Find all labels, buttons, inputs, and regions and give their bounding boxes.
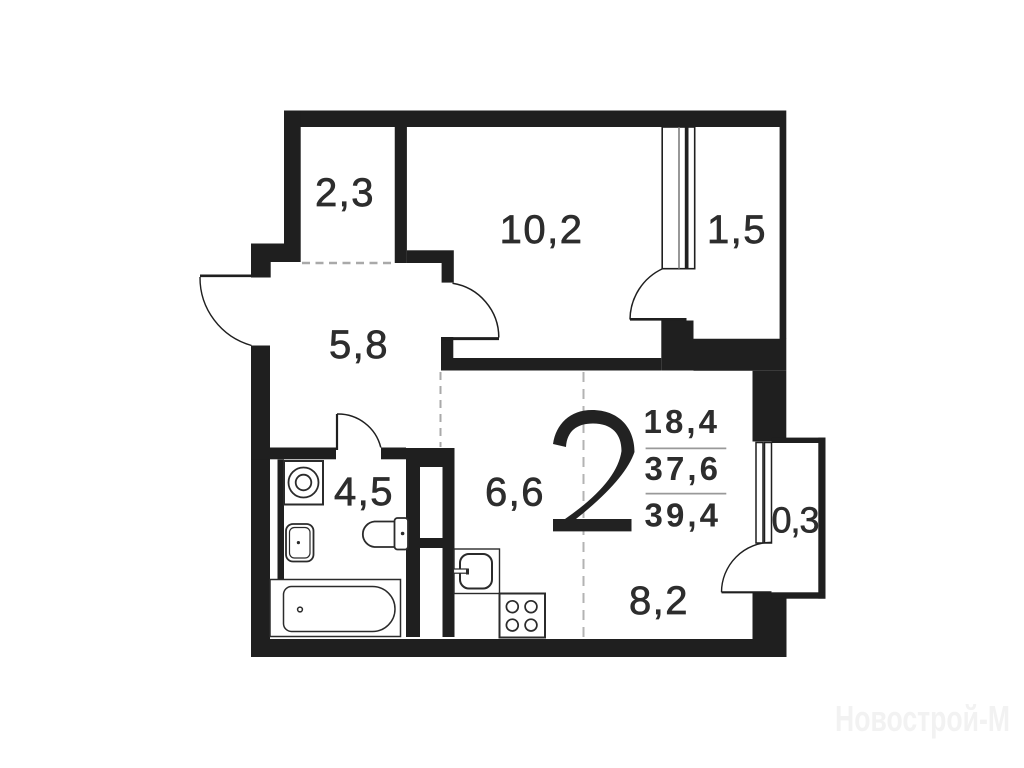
svg-text:1,5: 1,5 xyxy=(707,208,767,252)
svg-text:39,4: 39,4 xyxy=(645,497,722,534)
svg-text:Новострой-М: Новострой-М xyxy=(835,698,1010,739)
svg-text:5,8: 5,8 xyxy=(329,323,389,367)
svg-text:8,2: 8,2 xyxy=(629,579,689,623)
svg-text:4,5: 4,5 xyxy=(334,470,394,514)
svg-text:37,6: 37,6 xyxy=(645,450,722,487)
svg-text:10,2: 10,2 xyxy=(500,208,584,252)
svg-text:18,4: 18,4 xyxy=(644,403,721,440)
svg-text:0,3: 0,3 xyxy=(771,500,818,541)
svg-text:2,3: 2,3 xyxy=(315,171,375,215)
svg-text:6,6: 6,6 xyxy=(485,471,545,515)
